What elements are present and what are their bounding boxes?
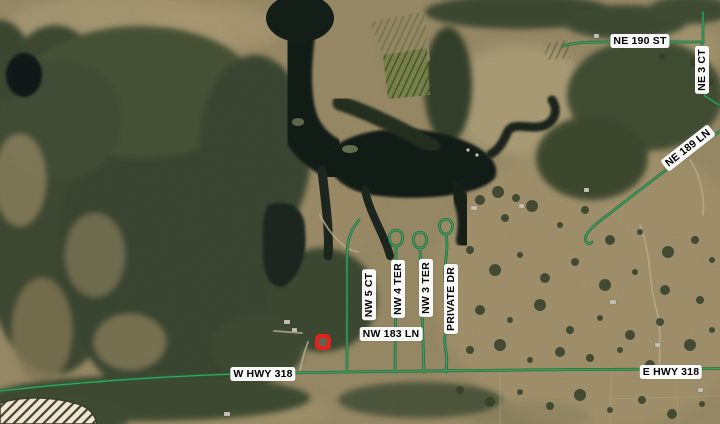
road-label-w-hwy-318: W HWY 318 (230, 367, 295, 381)
selected-location-marker[interactable] (315, 334, 331, 350)
road-label-ne-190-st: NE 190 ST (610, 34, 669, 48)
map-viewport[interactable]: NE 190 ST NE 3 CT NE 189 LN NW 5 CT NW 4… (0, 0, 720, 424)
road-label-nw-3-ter: NW 3 TER (419, 259, 433, 317)
road-label-ne-3-ct: NE 3 CT (695, 46, 709, 94)
road-label-nw-5-ct: NW 5 CT (362, 270, 376, 321)
road-label-nw-183-ln: NW 183 LN (360, 327, 423, 341)
road-label-nw-4-ter: NW 4 TER (391, 260, 405, 318)
road-label-e-hwy-318: E HWY 318 (640, 365, 702, 379)
road-label-private-dr: PRIVATE DR (444, 264, 458, 334)
aerial-imagery-layer (0, 0, 720, 424)
